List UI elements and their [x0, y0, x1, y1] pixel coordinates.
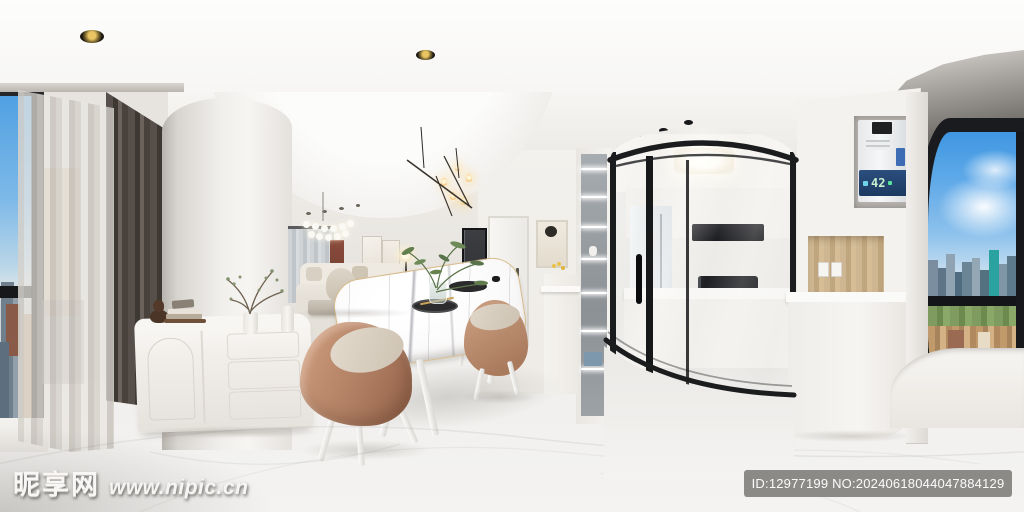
- panorama-photo: 42: [0, 0, 1024, 512]
- watermark-id-badge: ID:12977199 NO:20240618044047884129: [744, 470, 1012, 497]
- watermark-site: 昵享网 www.nipic.cn: [13, 463, 248, 502]
- watermark-site-url: www.nipic.cn: [109, 476, 248, 500]
- plants: [0, 0, 1024, 512]
- watermark-site-name: 昵享网: [13, 463, 100, 502]
